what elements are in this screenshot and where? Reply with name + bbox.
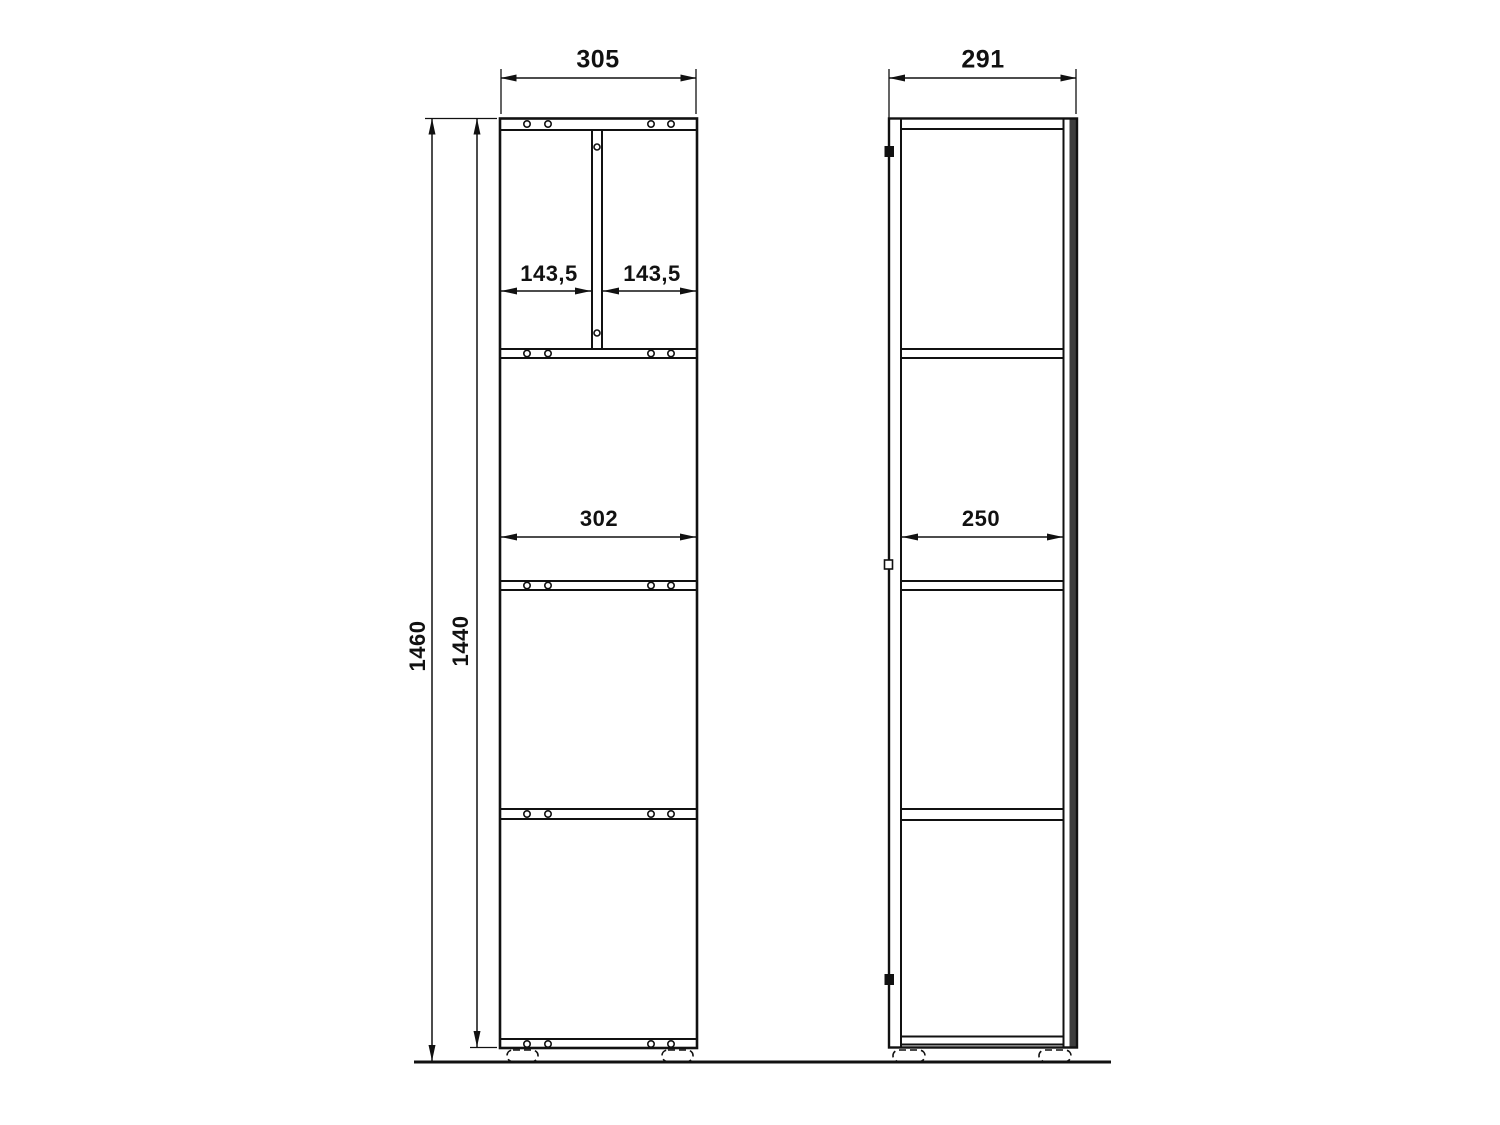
screw-hole	[648, 121, 654, 127]
dim-label-overall-width: 305	[576, 46, 619, 75]
connector-mark-middle	[885, 560, 893, 569]
dimension-lines	[432, 78, 1077, 1061]
screw-hole	[668, 1041, 674, 1047]
screw-hole	[524, 582, 530, 588]
foot-outline	[662, 1050, 693, 1062]
screw-hole	[545, 1041, 551, 1047]
foot-outline	[507, 1050, 538, 1062]
dim-label-overall-depth: 291	[961, 46, 1004, 75]
screw-hole	[648, 1041, 654, 1047]
side-view	[885, 119, 1078, 1062]
dim-label-overall-height: 1460	[405, 621, 431, 672]
dim-label-inner-width: 302	[580, 506, 618, 532]
screw-hole	[648, 811, 654, 817]
foot-outline	[893, 1050, 925, 1062]
dimension-drawing: 305 291 1460 1440 143,5 143,5 302 250	[0, 0, 1500, 1125]
screw-holes	[524, 121, 674, 1047]
screw-hole	[668, 350, 674, 356]
screw-hole	[524, 811, 530, 817]
side-view-outline	[889, 119, 1077, 1048]
screw-hole	[668, 121, 674, 127]
dim-label-right-compartment-width: 143,5	[623, 261, 681, 287]
screw-hole	[594, 330, 600, 336]
front-view	[500, 119, 697, 1062]
screw-hole	[668, 582, 674, 588]
screw-hole	[648, 582, 654, 588]
screw-hole	[524, 350, 530, 356]
screw-hole	[545, 121, 551, 127]
extension-lines	[425, 69, 1076, 1048]
dim-label-left-compartment-width: 143,5	[520, 261, 578, 287]
screw-hole	[648, 350, 654, 356]
screw-hole	[545, 811, 551, 817]
foot-outline	[1039, 1050, 1071, 1062]
connector-mark-bottom	[885, 974, 895, 985]
screw-hole	[524, 121, 530, 127]
drawing-linework	[0, 0, 1500, 1125]
connector-mark-top	[885, 146, 895, 157]
screw-hole	[668, 811, 674, 817]
screw-hole	[545, 350, 551, 356]
dim-label-inner-depth: 250	[962, 506, 1000, 532]
screw-hole	[545, 582, 551, 588]
dim-label-body-height: 1440	[448, 616, 474, 667]
screw-hole	[524, 1041, 530, 1047]
screw-hole	[594, 144, 600, 150]
